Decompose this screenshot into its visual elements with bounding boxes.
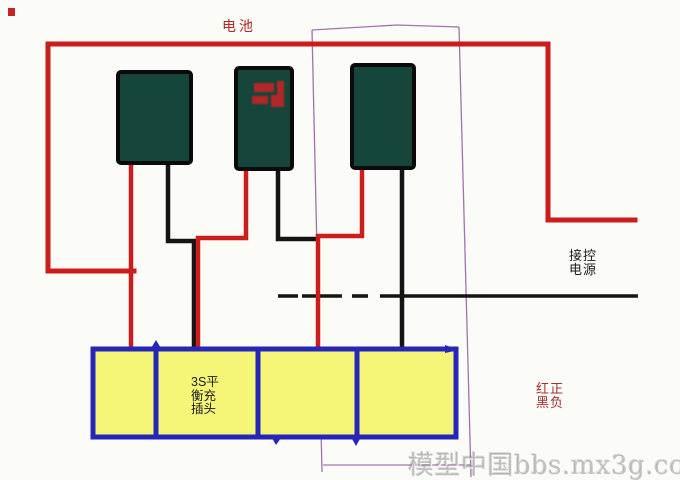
control-power-label-line1: 接控 <box>569 249 597 263</box>
battery2-black-lead <box>278 163 315 239</box>
polarity-legend-line2: 黑负 <box>536 396 564 410</box>
wiring-diagram: 电池 接控 电源 红正 黑负 3S平 衡充 插头 模型中国bbs.mx3g.co… <box>0 0 680 480</box>
battery3-red-lead <box>318 163 362 351</box>
plug-arrow-down <box>351 437 361 446</box>
selection-box-top <box>312 25 459 30</box>
polarity-legend: 红正 黑负 <box>536 382 564 409</box>
balance-plug-label-line2: 衡充 <box>191 390 219 404</box>
balance-plug-label: 3S平 衡充 插头 <box>191 376 219 417</box>
balance-plug-label-line1: 3S平 <box>191 376 219 390</box>
control-power-label-line2: 电源 <box>569 263 597 277</box>
balance-plug-label-line3: 插头 <box>191 403 219 417</box>
battery2-red-lead <box>198 163 246 351</box>
battery1-black-lead <box>168 158 194 351</box>
diagram-drawing <box>0 0 680 480</box>
control-power-label: 接控 电源 <box>569 249 597 276</box>
selection-box-right <box>459 27 471 477</box>
red-corner-mark <box>8 8 15 16</box>
polarity-legend-line1: 红正 <box>536 382 564 396</box>
plug-arrow-down-small <box>272 438 281 445</box>
balance-plug <box>93 340 459 446</box>
plug-arrow-up <box>150 340 162 350</box>
watermark: 模型中国bbs.mx3g.com <box>408 445 680 480</box>
balance-plug-body <box>93 349 456 437</box>
battery-bus-label: 电池 <box>222 16 256 36</box>
battery-3 <box>352 65 414 168</box>
battery-1 <box>118 72 191 163</box>
